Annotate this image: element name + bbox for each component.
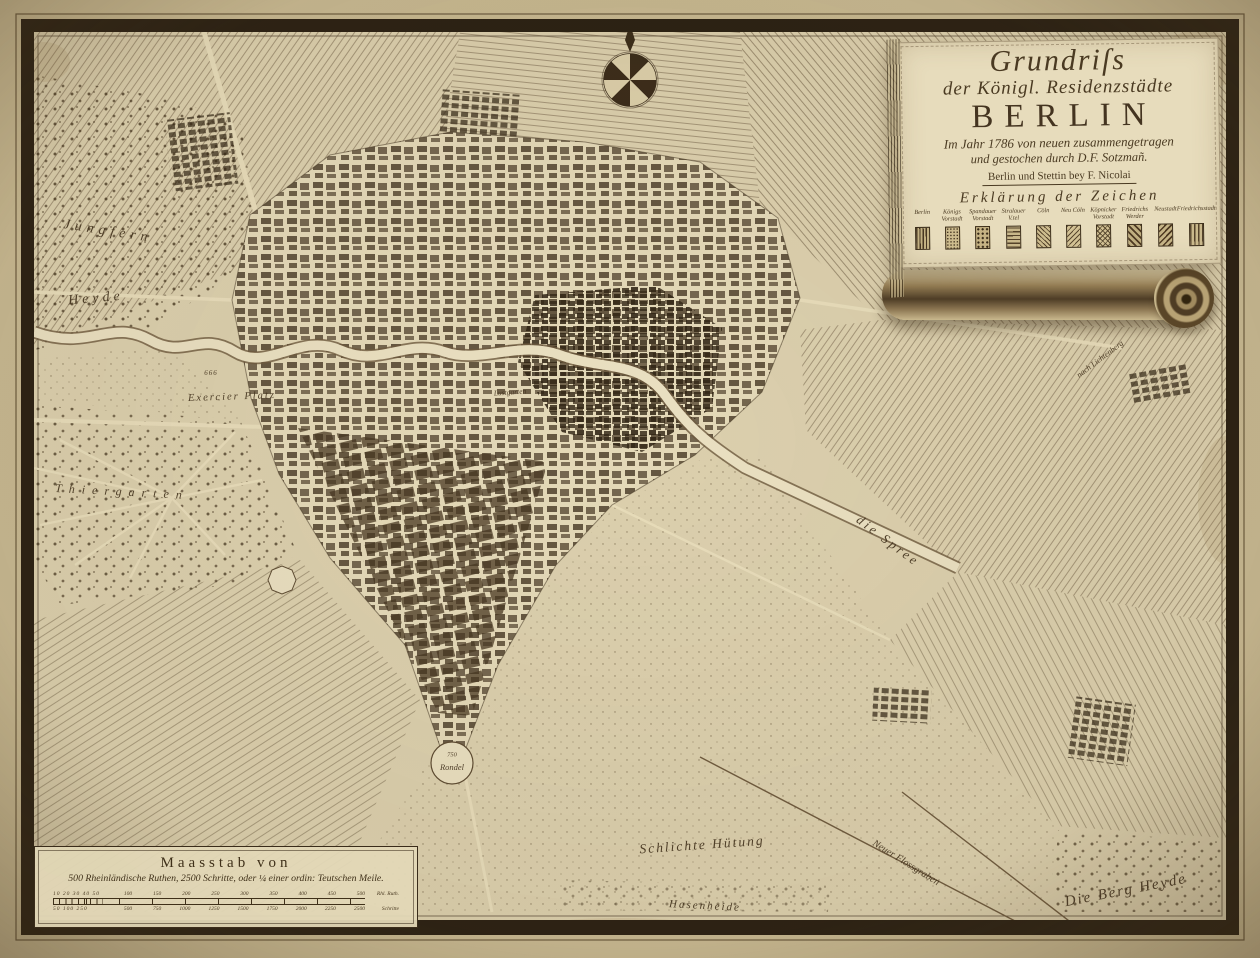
legend-swatch-spandauer-vorstadt bbox=[975, 226, 990, 249]
legend-item: Neu Cöln bbox=[1061, 208, 1086, 248]
map-title-script: Grundriſs bbox=[904, 43, 1212, 79]
legend-swatch-koepnicker-vorstadt bbox=[1096, 224, 1111, 247]
scale-bar: Maasstab von 500 Rheinländische Ruthen, … bbox=[34, 846, 418, 928]
map-imprint: Berlin und Stettin bey F. Nicolai bbox=[982, 168, 1137, 186]
scale-upper-unit: Rhl. Ruth. bbox=[365, 891, 399, 897]
legend-item: Friedrichs Werder bbox=[1121, 207, 1148, 247]
scale-lower-ticks: 50 100 250 500 750 1000 1250 1500 1750 2… bbox=[53, 906, 399, 912]
scale-rule-bar bbox=[53, 898, 365, 905]
legend-item: Köpnicker Vorstadt bbox=[1090, 207, 1117, 247]
legend-swatch-neu-coeln bbox=[1066, 225, 1081, 248]
scale-subtitle: 500 Rheinländische Ruthen, 2500 Schritte… bbox=[49, 873, 403, 884]
legend-swatch-row: Berlin Königs Vorstadt Spandauer Vorstad… bbox=[906, 204, 1215, 250]
legend-item: Friedrichsstadt bbox=[1183, 206, 1211, 246]
title-cartouche: Grundriſs der Königl. Residenzstädte BER… bbox=[898, 40, 1222, 324]
legend-swatch-koenigs-vorstadt bbox=[945, 227, 960, 250]
legend-item: Cöln bbox=[1031, 208, 1056, 248]
legend-swatch-friedrichs-werder bbox=[1127, 224, 1142, 247]
map-page: Grundriſs der Königl. Residenzstädte BER… bbox=[0, 0, 1260, 958]
legend-item: Neustadt bbox=[1153, 207, 1178, 247]
map-title-city: BERLIN bbox=[904, 96, 1212, 137]
map-label-exercier-number: 666 bbox=[204, 369, 218, 377]
legend-item: Stralauer V.tel bbox=[1001, 209, 1026, 249]
legend-item: Spandauer Vorstadt bbox=[969, 209, 997, 249]
legend-swatch-stralauer-viertel bbox=[1006, 226, 1021, 249]
legend-item: Berlin bbox=[910, 210, 935, 250]
map-label-rondel: Rondel bbox=[440, 762, 464, 772]
scale-lower-unit: Schritte bbox=[365, 906, 399, 912]
scale-ruler: 10 20 30 40 50 100 150 200 250 300 350 4… bbox=[53, 891, 399, 912]
scroll-roll-end bbox=[1154, 268, 1214, 328]
map-label-rondel-number: 750 bbox=[447, 752, 457, 759]
scale-upper-ticks: 10 20 30 40 50 100 150 200 250 300 350 4… bbox=[53, 891, 399, 897]
scale-title: Maasstab von bbox=[49, 855, 403, 872]
legend-item: Königs Vorstadt bbox=[939, 210, 964, 250]
scroll-roll bbox=[882, 270, 1192, 320]
legend-swatch-coeln bbox=[1036, 225, 1051, 248]
legend-swatch-friedrichsstadt bbox=[1189, 223, 1204, 246]
scroll-paper: Grundriſs der Königl. Residenzstädte BER… bbox=[896, 38, 1221, 268]
legend-swatch-berlin bbox=[915, 227, 930, 250]
legend-swatch-neustadt bbox=[1158, 224, 1173, 247]
